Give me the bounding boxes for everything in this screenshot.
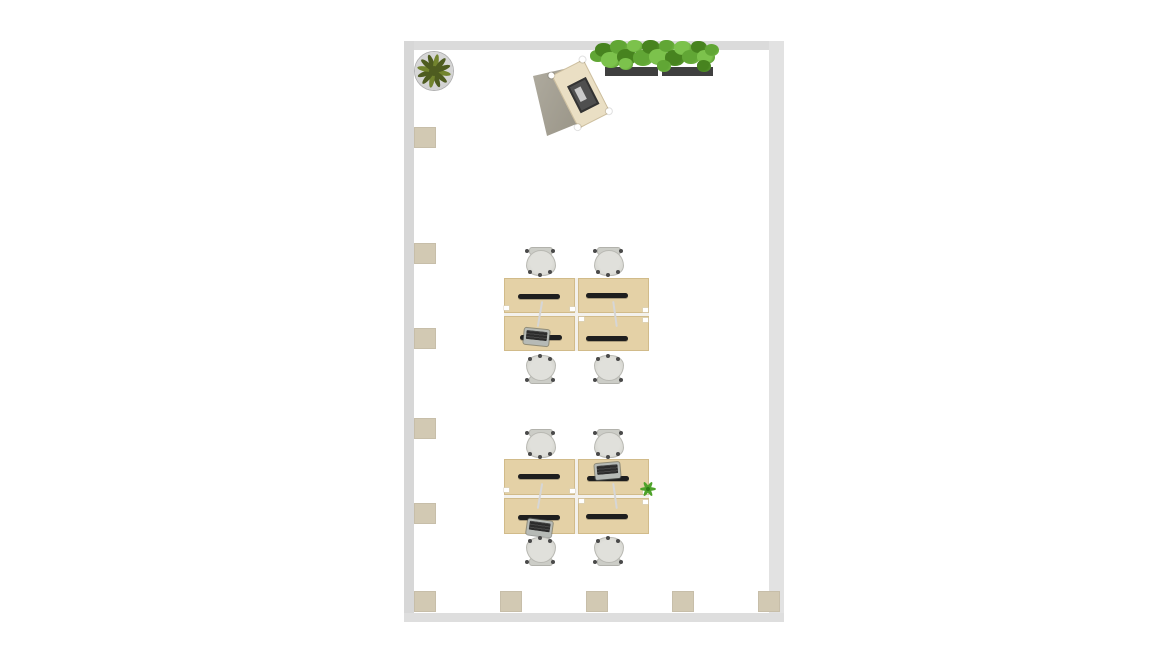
wall-top	[404, 41, 784, 50]
chair-caster	[596, 539, 600, 543]
column-pillar[interactable]	[414, 503, 436, 524]
laptop-screen	[526, 330, 548, 341]
column-pillar[interactable]	[758, 591, 780, 612]
chair-caster	[619, 249, 623, 253]
chair-caster	[616, 452, 620, 456]
laptop[interactable]	[526, 518, 553, 537]
grommet	[504, 306, 509, 310]
desk-cluster[interactable]	[504, 459, 649, 534]
floor-plan-canvas	[0, 0, 1166, 656]
grommet	[504, 488, 509, 492]
column-pillar[interactable]	[586, 591, 608, 612]
hedge-foliage	[697, 60, 711, 71]
column-pillar[interactable]	[414, 418, 436, 439]
chair-caster	[538, 273, 542, 277]
chair-caster	[593, 378, 597, 382]
office-chair[interactable]	[592, 537, 624, 566]
chair-caster	[619, 560, 623, 564]
desk-monitor[interactable]	[518, 294, 560, 299]
chair-caster	[548, 357, 552, 361]
desk-monitor[interactable]	[586, 514, 628, 519]
chair-caster	[616, 539, 620, 543]
office-chair[interactable]	[592, 355, 624, 384]
chair-caster	[606, 354, 610, 358]
desk-plant[interactable]	[639, 480, 657, 498]
grommet	[643, 500, 648, 504]
chair-caster	[538, 536, 542, 540]
chair-caster	[606, 273, 610, 277]
chair-caster	[596, 357, 600, 361]
reception-desk-group[interactable]	[531, 62, 613, 140]
chair-caster	[551, 378, 555, 382]
office-chair[interactable]	[592, 247, 624, 276]
laptop-screen	[597, 464, 619, 475]
chair-caster	[538, 354, 542, 358]
grommet	[643, 308, 648, 312]
hedge-foliage	[705, 44, 719, 55]
chair-caster	[593, 249, 597, 253]
grommet	[643, 318, 648, 322]
chair-caster	[525, 378, 529, 382]
office-chair[interactable]	[524, 429, 556, 458]
potted-plant[interactable]	[415, 52, 453, 90]
laptop[interactable]	[523, 328, 550, 347]
chair-caster	[593, 431, 597, 435]
chair-caster	[528, 357, 532, 361]
column-pillar[interactable]	[414, 243, 436, 264]
chair-caster	[606, 536, 610, 540]
chair-caster	[548, 270, 552, 274]
hedge-foliage	[619, 58, 633, 69]
chair-caster	[619, 431, 623, 435]
grommet	[579, 317, 584, 321]
grommet	[570, 307, 575, 311]
grommet	[579, 499, 584, 503]
chair-caster	[525, 249, 529, 253]
chair-caster	[551, 431, 555, 435]
desk-corner-dot	[574, 123, 582, 131]
chair-caster	[528, 452, 532, 456]
chair-caster	[551, 560, 555, 564]
desk-monitor[interactable]	[518, 474, 560, 479]
chair-caster	[551, 249, 555, 253]
chair-caster	[606, 455, 610, 459]
office-chair[interactable]	[524, 247, 556, 276]
chair-caster	[525, 560, 529, 564]
chair-caster	[528, 270, 532, 274]
chair-caster	[528, 539, 532, 543]
column-pillar[interactable]	[672, 591, 694, 612]
wall-right	[769, 41, 784, 622]
desk-monitor[interactable]	[586, 293, 628, 298]
desk-corner-dot	[605, 107, 613, 115]
column-pillar[interactable]	[500, 591, 522, 612]
hedge-foliage	[657, 60, 671, 71]
grommet	[570, 489, 575, 493]
chair-caster	[616, 357, 620, 361]
reception-monitor	[567, 77, 599, 113]
office-chair[interactable]	[592, 429, 624, 458]
chair-caster	[616, 270, 620, 274]
desk[interactable]	[578, 316, 649, 351]
wall-left	[404, 41, 414, 622]
laptop[interactable]	[594, 462, 620, 480]
chair-caster	[548, 539, 552, 543]
chair-caster	[596, 452, 600, 456]
chair-caster	[548, 452, 552, 456]
desk-monitor[interactable]	[586, 336, 628, 341]
wall-bottom	[404, 613, 784, 622]
desk-plant-center	[646, 487, 650, 491]
column-pillar[interactable]	[414, 591, 436, 612]
reception-monitor-screen	[574, 86, 587, 102]
chair-caster	[538, 455, 542, 459]
office-chair[interactable]	[524, 355, 556, 384]
column-pillar[interactable]	[414, 127, 436, 148]
chair-caster	[593, 560, 597, 564]
chair-caster	[525, 431, 529, 435]
office-chair[interactable]	[524, 537, 556, 566]
plant-center	[429, 66, 439, 76]
chair-caster	[596, 270, 600, 274]
column-pillar[interactable]	[414, 328, 436, 349]
laptop-screen	[529, 521, 551, 533]
chair-caster	[619, 378, 623, 382]
